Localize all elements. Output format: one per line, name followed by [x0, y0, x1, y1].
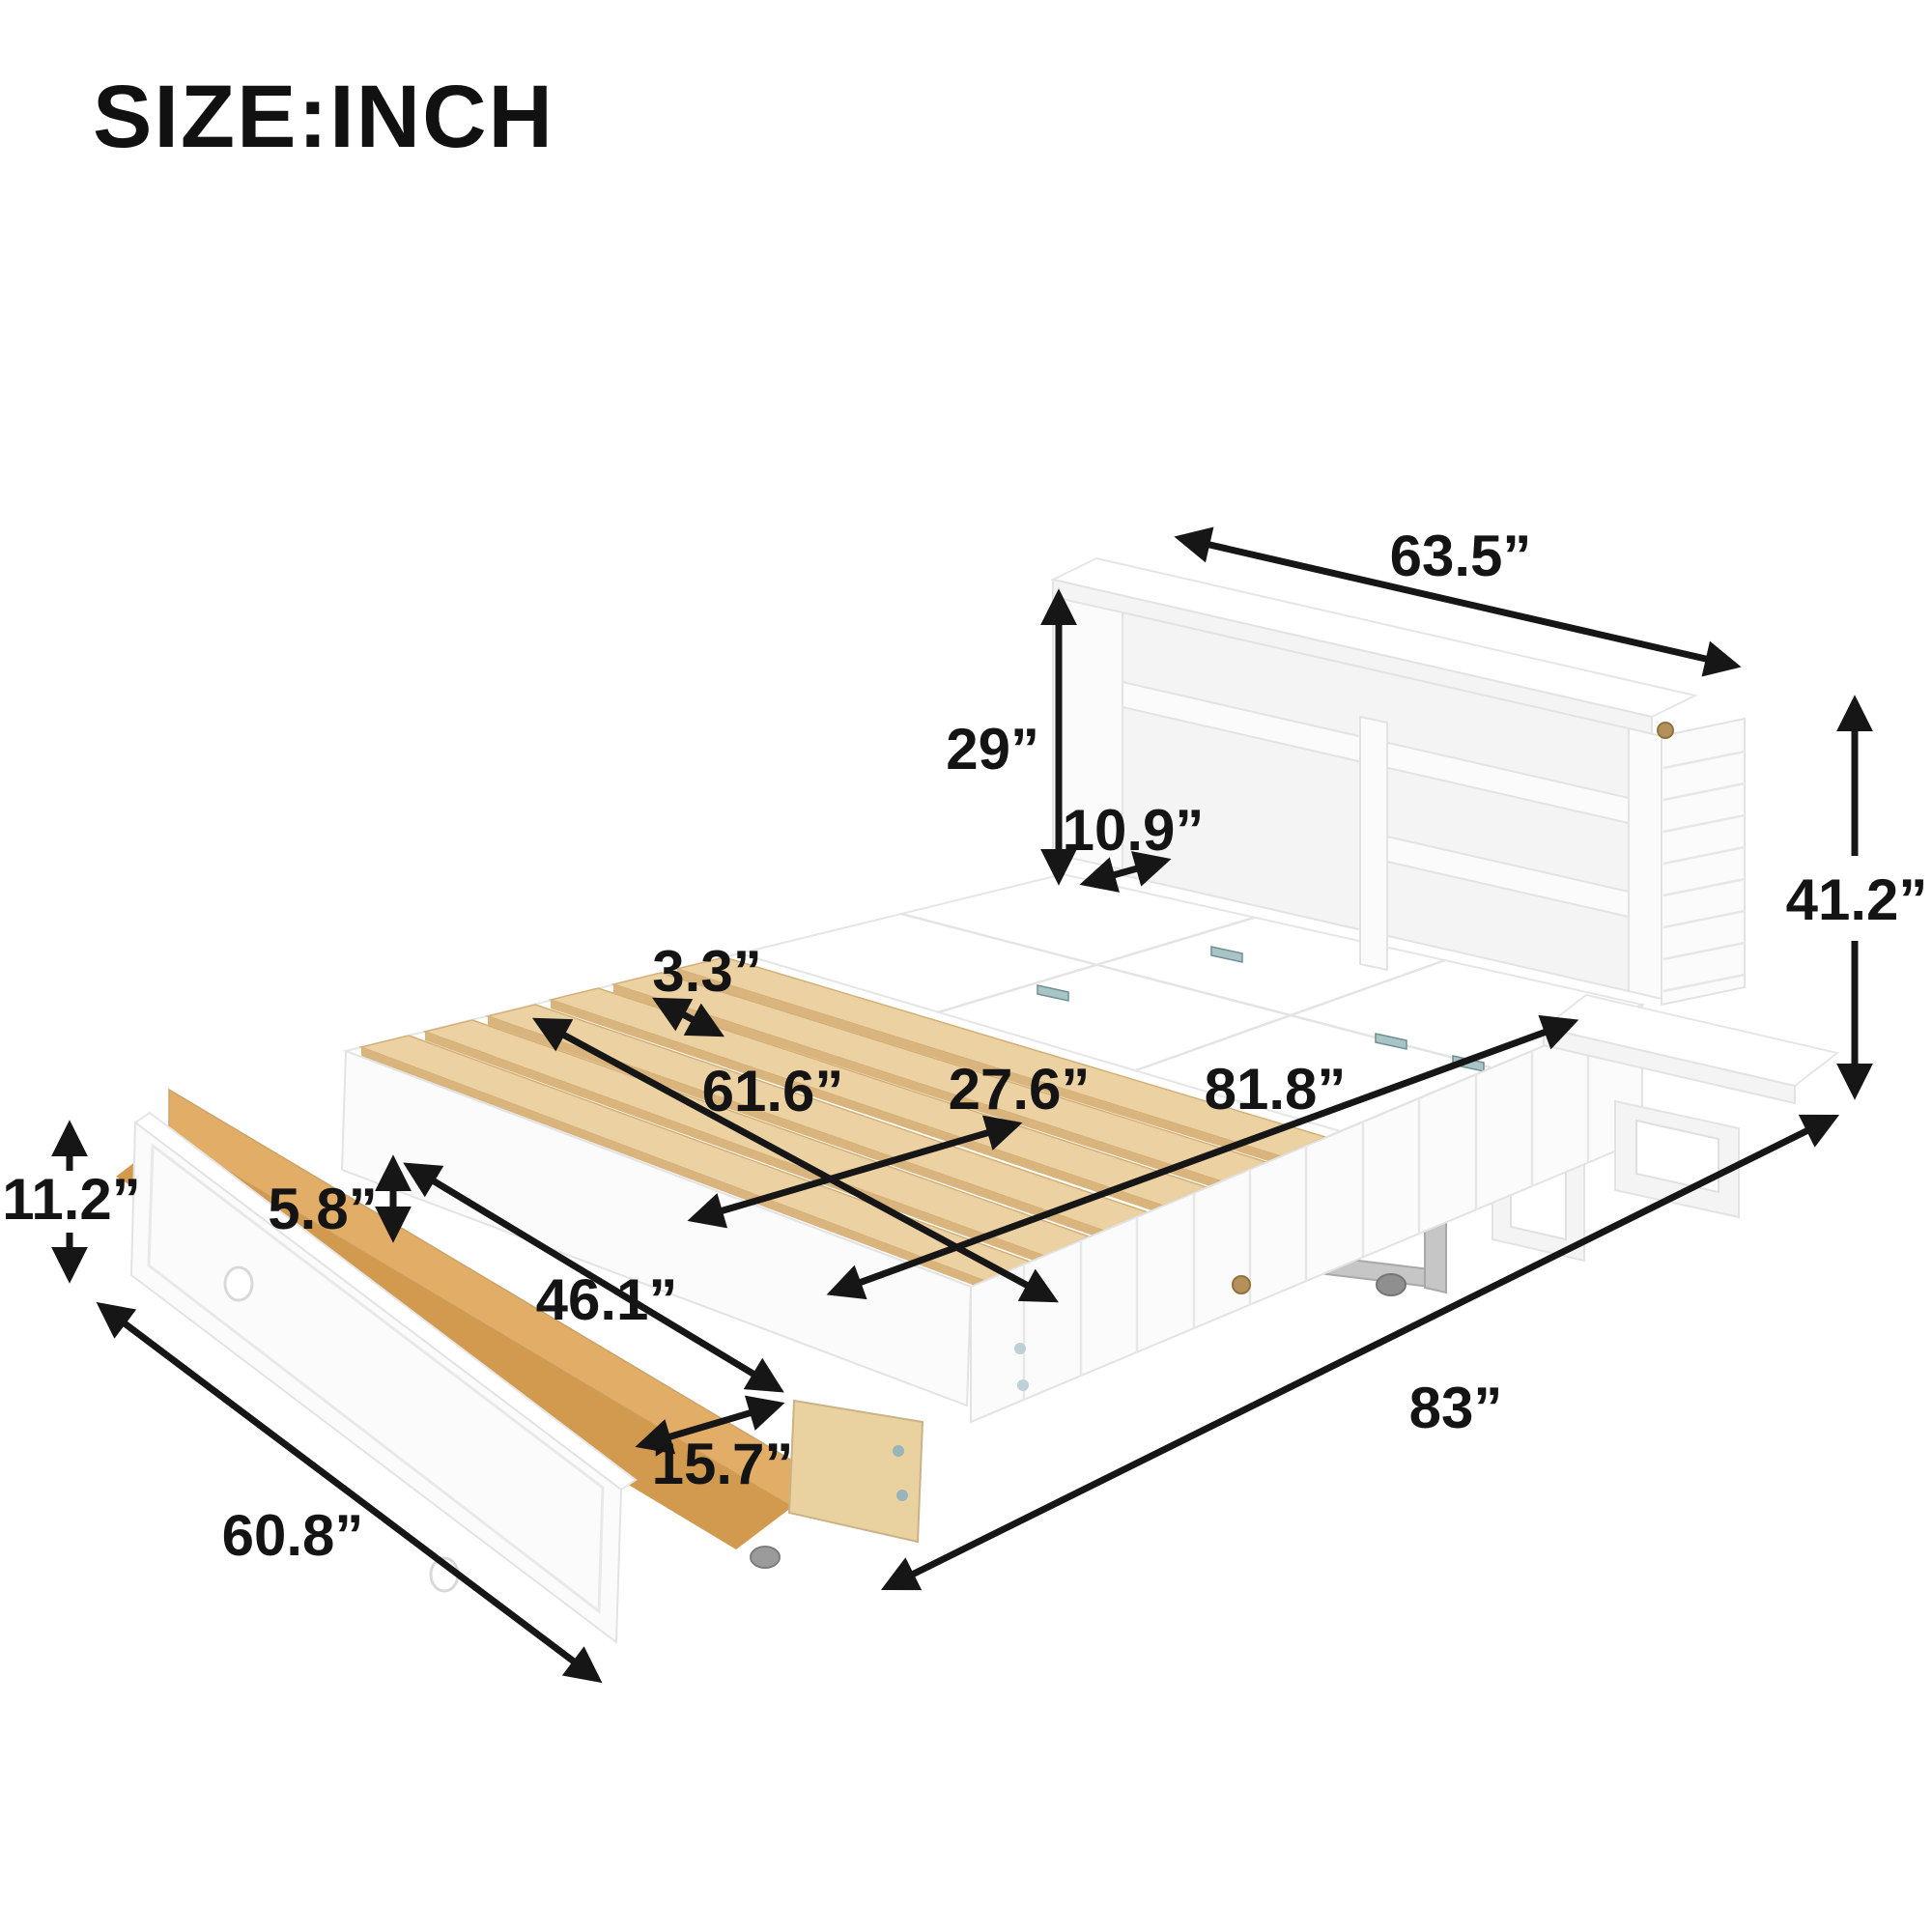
dim-label-drawer-inner-width: 15.7” — [652, 1432, 794, 1496]
diagram-canvas: SIZE:INCH 63.5” 29” 10.9” 41.2” 3.3” 61.… — [0, 0, 1932, 1932]
cabinet-center-divider — [1360, 717, 1387, 970]
dim-label-shelf-depth: 10.9” — [1063, 798, 1205, 863]
screw — [896, 1490, 908, 1501]
screw — [1014, 1343, 1026, 1354]
screw — [1017, 1379, 1029, 1391]
cabinet-right-stile — [1629, 728, 1662, 999]
dim-label-cabinet-width: 63.5” — [1390, 524, 1532, 588]
dim-label-bed-length: 81.8” — [1205, 1057, 1347, 1122]
dim-cabinet-height: 41.2” — [1786, 701, 1928, 1094]
screw — [893, 1445, 904, 1457]
dim-label-slat-section-length: 61.6” — [702, 1059, 844, 1123]
caster-wheel — [751, 1547, 780, 1568]
dim-label-slat-length: 27.6” — [949, 1057, 1091, 1122]
dim-label-drawer-inner-depth: 5.8” — [268, 1177, 377, 1241]
dim-headboard-height: 29” — [946, 595, 1059, 879]
drawer-end-panel — [789, 1401, 923, 1542]
dim-label-cabinet-height: 41.2” — [1786, 867, 1928, 932]
dim-label-overall-length: 83” — [1409, 1376, 1503, 1440]
dim-label-drawer-inner-length: 46.1” — [536, 1267, 678, 1332]
dim-label-drawer-height: 11.2” — [2, 1167, 140, 1232]
dim-drawer-height: 11.2” — [2, 1126, 140, 1277]
keyhole-fitting — [1233, 1276, 1250, 1293]
dim-label-drawer-length: 60.8” — [222, 1503, 364, 1568]
dimension-diagram: SIZE:INCH 63.5” 29” 10.9” 41.2” 3.3” 61.… — [0, 0, 1932, 1932]
dim-label-headboard-height: 29” — [946, 717, 1039, 781]
cabinet-right-side-shiplap — [1662, 719, 1745, 1005]
dim-label-slat-spacing: 3.3” — [652, 939, 761, 1004]
caster-wheel — [1377, 1274, 1406, 1295]
page-title: SIZE:INCH — [93, 68, 554, 166]
latch — [1658, 723, 1673, 738]
